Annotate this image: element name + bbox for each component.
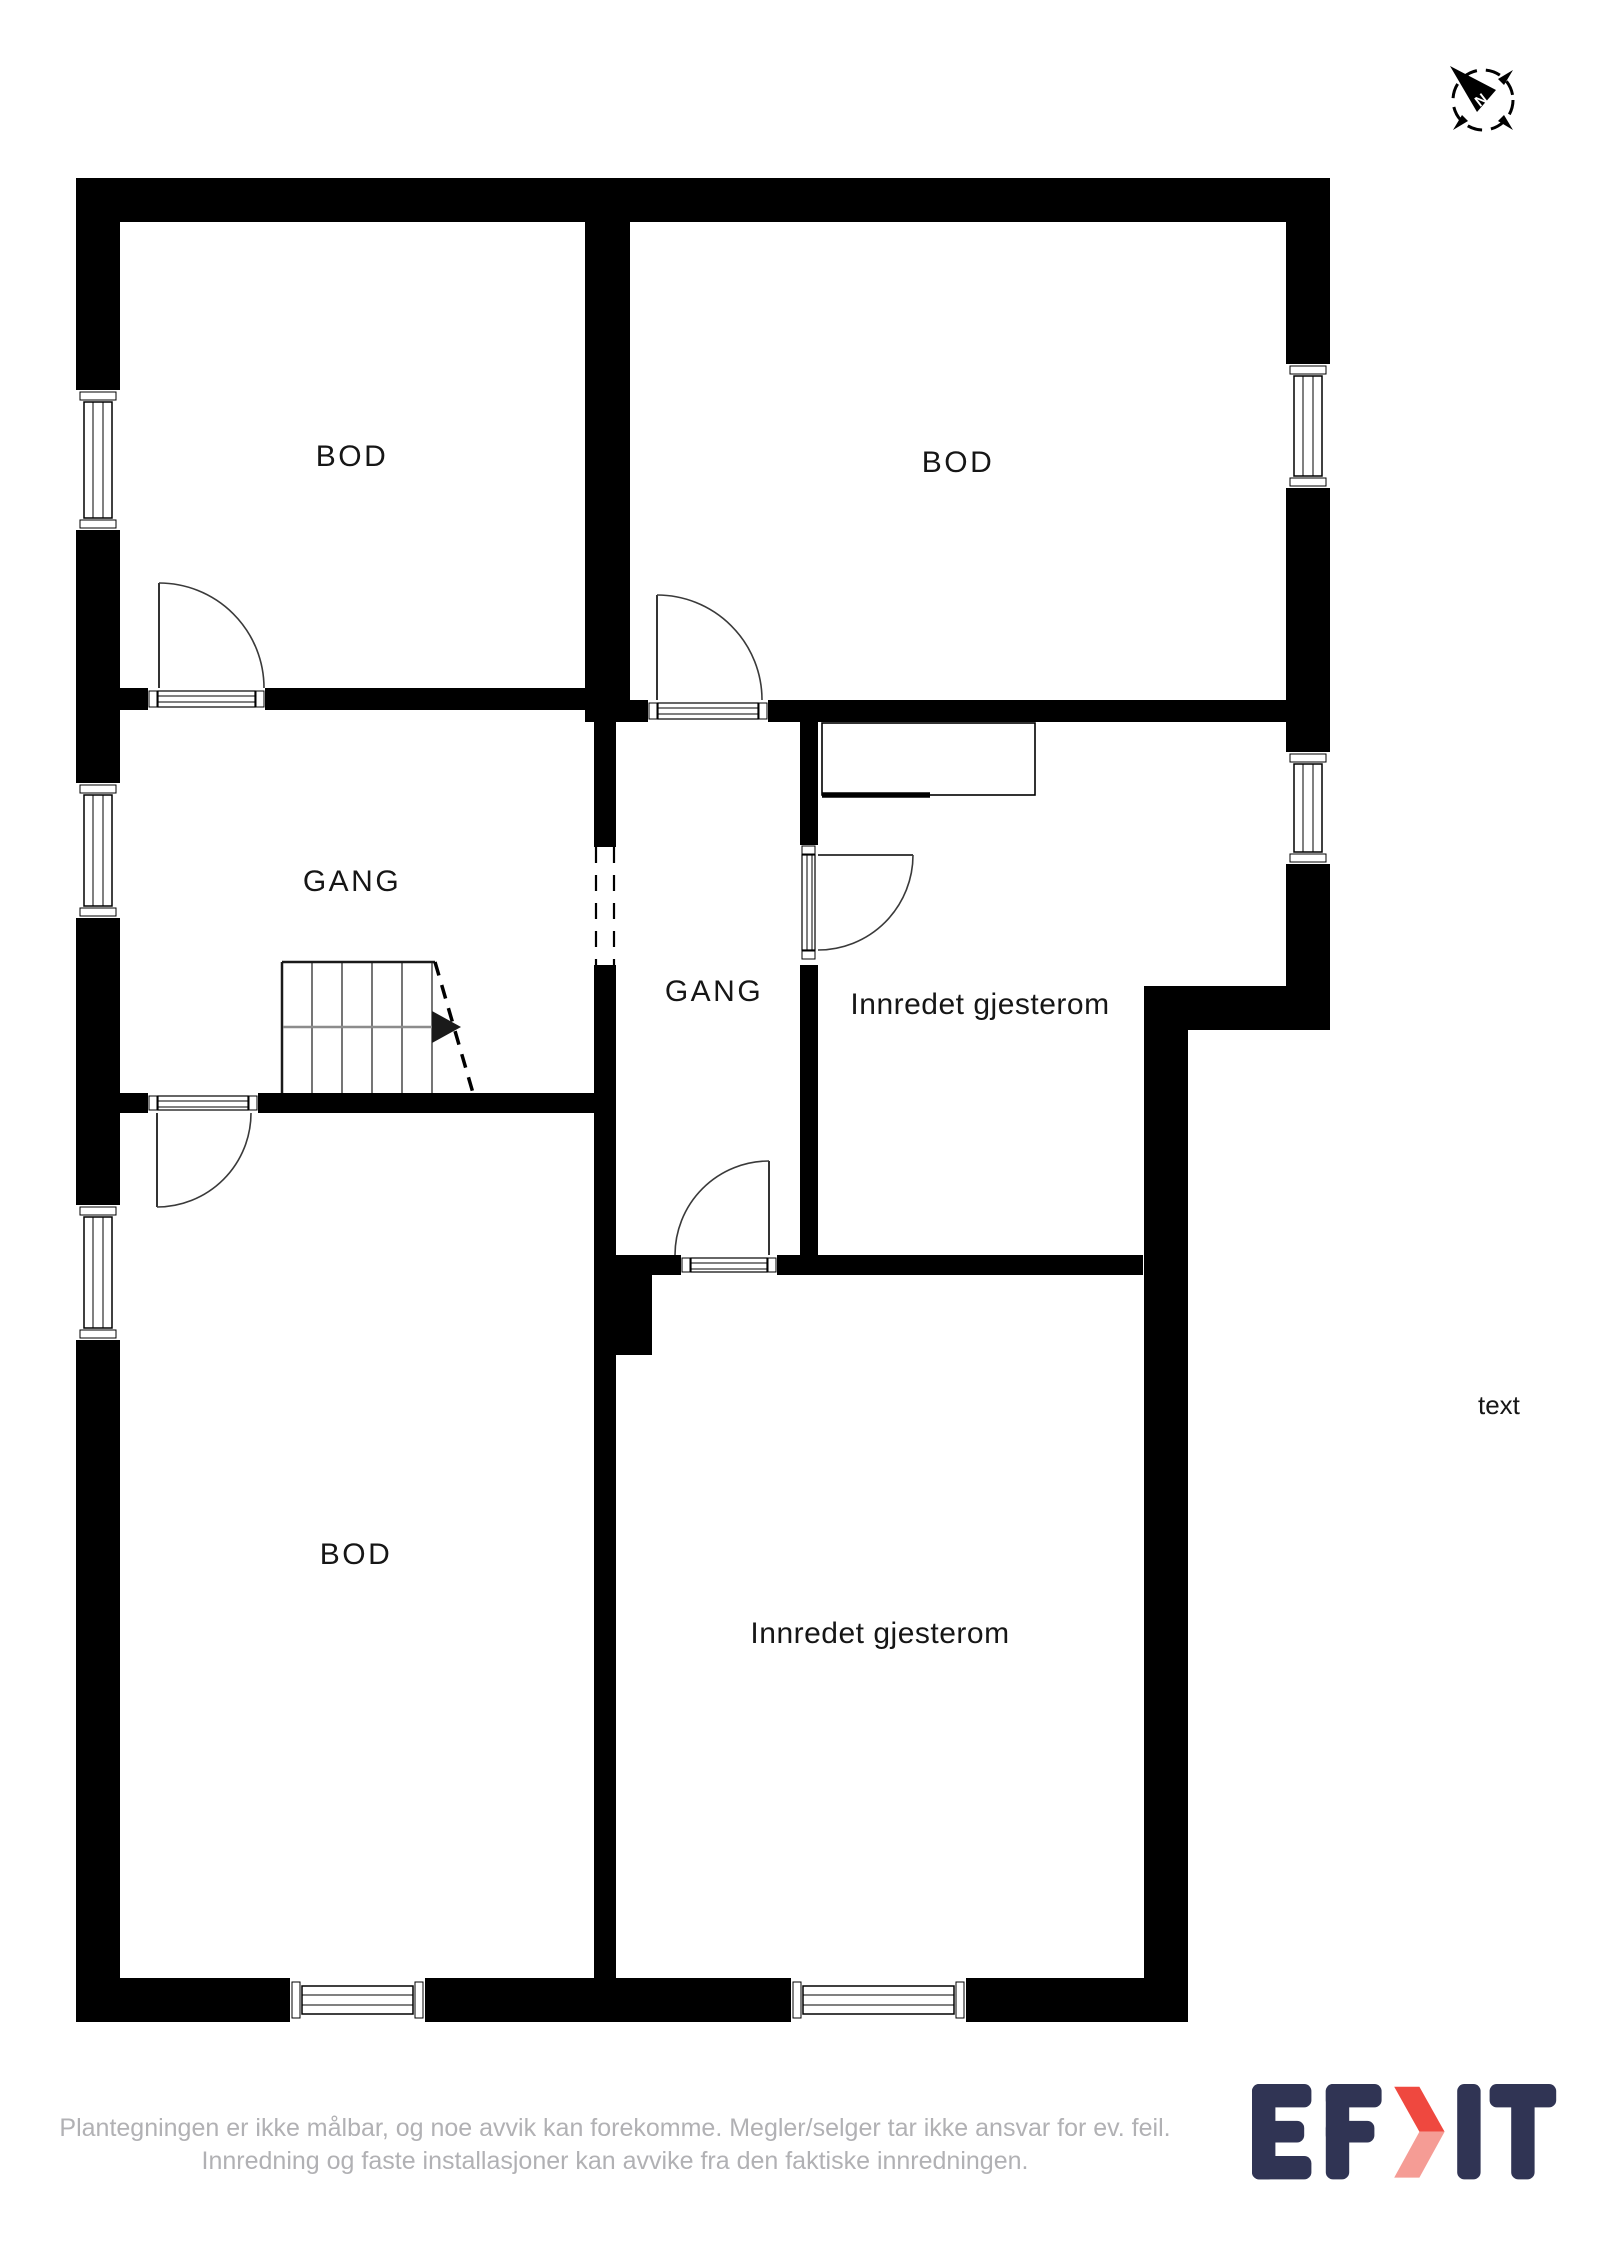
compass-icon: N bbox=[1450, 66, 1513, 130]
wall-gangL-bottom-b bbox=[258, 1093, 616, 1113]
door-threshold bbox=[148, 1093, 258, 1113]
wall-divider-lower bbox=[594, 965, 616, 1978]
door-swing bbox=[818, 855, 913, 950]
wall-gangL-top-b bbox=[265, 688, 585, 710]
wall-gangL-top-a bbox=[120, 688, 148, 710]
disclaimer-line-1: Plantegningen er ikke målbar, og noe avv… bbox=[0, 2112, 1230, 2145]
room-label-bod-top-right: BOD bbox=[922, 446, 995, 479]
door-threshold bbox=[681, 1255, 777, 1275]
room-label-bod-bottom: BOD bbox=[320, 1538, 393, 1571]
window bbox=[76, 390, 120, 530]
stairs bbox=[282, 962, 473, 1093]
wall-divider-upper bbox=[594, 700, 616, 847]
wall-step bbox=[1144, 986, 1330, 1030]
side-annotation: text bbox=[1478, 1390, 1520, 1421]
wall-gangL-bottom-a bbox=[120, 1093, 148, 1113]
window bbox=[1286, 364, 1330, 488]
walls bbox=[76, 178, 1330, 2022]
disclaimer: Plantegningen er ikke målbar, og noe avv… bbox=[0, 2112, 1230, 2178]
wall-jog-block bbox=[613, 1275, 652, 1355]
room-labels: BOD BOD GANG GANG Innredet gjesterom BOD… bbox=[303, 440, 1110, 1650]
door-swing bbox=[159, 583, 264, 688]
door-threshold bbox=[148, 688, 265, 710]
floor-plan: BOD BOD GANG GANG Innredet gjesterom BOD… bbox=[0, 0, 1600, 2263]
wall-corridor-right-b bbox=[800, 965, 818, 1255]
disclaimer-line-2: Innredning og faste installasjoner kan a… bbox=[0, 2145, 1230, 2178]
window bbox=[290, 1978, 425, 2022]
compass-tick-ne bbox=[1498, 70, 1513, 85]
room-label-gjesterom-upper: Innredet gjesterom bbox=[850, 988, 1109, 1021]
wall-center-thick bbox=[585, 222, 630, 722]
wall-right-lower bbox=[1144, 1030, 1188, 1978]
wall-corridor-right-a bbox=[800, 722, 818, 845]
doors bbox=[157, 583, 913, 1255]
door-swing bbox=[157, 1113, 251, 1207]
wall-corridor-top-b bbox=[768, 700, 1286, 722]
compass-tick-se bbox=[1498, 115, 1513, 130]
door-threshold bbox=[800, 845, 818, 965]
compass-tick-sw bbox=[1453, 115, 1468, 130]
window bbox=[76, 1205, 120, 1340]
window bbox=[76, 783, 120, 918]
efkt-logo: EFKT bbox=[1250, 2082, 1570, 2192]
open-passage-dashed bbox=[596, 847, 614, 965]
windows bbox=[76, 364, 1330, 2022]
room-label-gang-center: GANG bbox=[665, 975, 763, 1008]
room-label-gang-left: GANG bbox=[303, 865, 401, 898]
wall-bottom bbox=[76, 1978, 1188, 2022]
floorplan-page: BOD BOD GANG GANG Innredet gjesterom BOD… bbox=[0, 0, 1600, 2263]
efkt-logo-letters bbox=[1252, 2084, 1556, 2179]
chevron-right-icon bbox=[1394, 2087, 1444, 2178]
wall-corridor-top-a bbox=[630, 700, 648, 722]
wall-gjesterom-lower-top-b bbox=[777, 1255, 1143, 1275]
room-label-gjesterom-lower: Innredet gjesterom bbox=[750, 1617, 1009, 1650]
wall-top bbox=[76, 178, 1330, 222]
door-swing bbox=[657, 595, 762, 700]
wall-right-upper bbox=[1286, 222, 1330, 1030]
door-swing bbox=[675, 1161, 769, 1255]
wall-gjesterom-lower-top-a bbox=[594, 1255, 681, 1275]
wardrobe bbox=[822, 723, 1035, 795]
door-threshold bbox=[648, 700, 768, 722]
room-label-bod-top-left: BOD bbox=[316, 440, 389, 473]
window bbox=[1286, 752, 1330, 864]
efkt-logo-graphic: EFKT bbox=[1250, 2082, 1570, 2192]
window bbox=[791, 1978, 966, 2022]
